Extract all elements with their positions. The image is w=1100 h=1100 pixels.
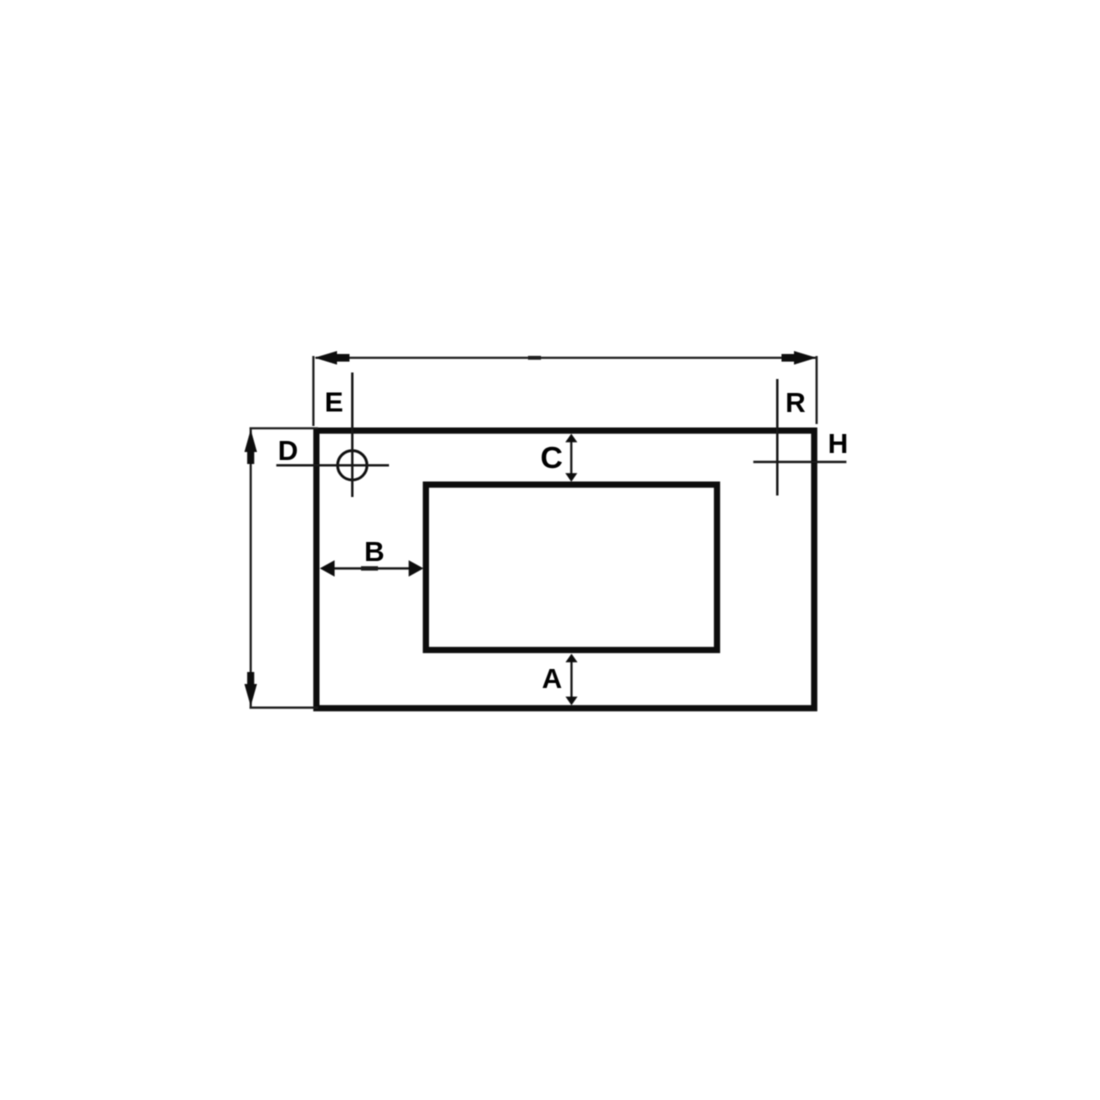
svg-text:R: R xyxy=(785,387,805,418)
svg-text:D: D xyxy=(278,435,298,466)
svg-text:H: H xyxy=(828,428,848,459)
svg-text:B: B xyxy=(364,536,384,567)
svg-text:A: A xyxy=(542,663,562,694)
svg-text:E: E xyxy=(325,387,344,418)
svg-text:C: C xyxy=(540,440,562,475)
